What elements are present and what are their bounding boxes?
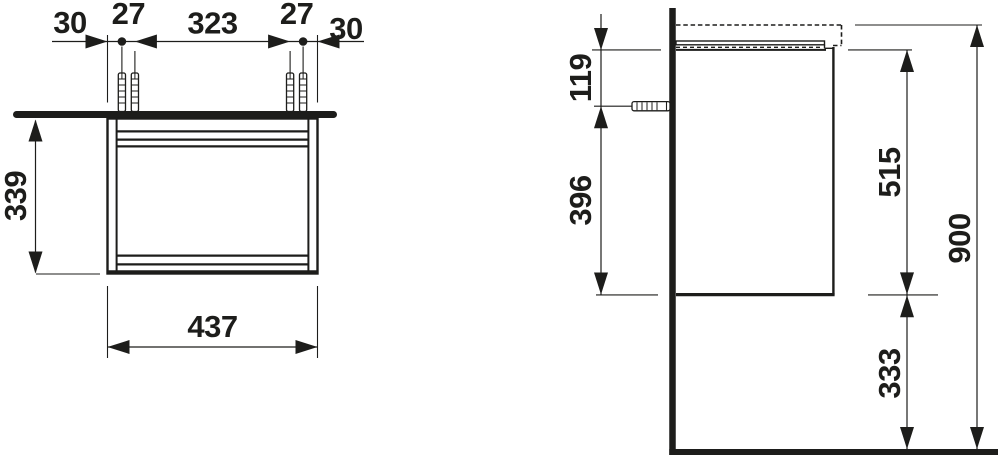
- fixing-dowel: [287, 73, 294, 112]
- dim-arrowhead-down: [970, 427, 984, 449]
- dim-dot: [118, 37, 127, 46]
- fixing-dowel-side: [594, 102, 670, 111]
- dim-label-fixing-pitch-right: 27: [280, 0, 313, 31]
- dim-label-overall-height: 900: [942, 213, 977, 263]
- dim-arrowhead-right: [296, 340, 318, 354]
- dim-label-cabinet-height: 515: [872, 147, 907, 197]
- drawing-canvas: 30 27 323 27 30 339 437: [0, 0, 1000, 458]
- cabinet-outline-front: [108, 119, 318, 274]
- dimension-fixing-heights: 119 396: [563, 14, 661, 295]
- technical-drawing: 30 27 323 27 30 339 437: [0, 0, 1000, 458]
- dim-arrowhead-left: [135, 35, 157, 49]
- dim-label-floor-clearance: 333: [872, 348, 907, 398]
- dim-arrowhead-right: [268, 35, 290, 49]
- dim-arrowhead-right: [86, 35, 108, 49]
- dim-dot: [299, 37, 308, 46]
- dim-arrowhead-down: [900, 272, 914, 294]
- dim-label-carcass-height: 339: [0, 171, 33, 221]
- dim-label-left-offset: 30: [53, 5, 86, 40]
- front-view: 30 27 323 27 30 339 437: [0, 0, 364, 358]
- dim-label-top-to-fixing: 119: [563, 53, 598, 102]
- fixing-dowel: [300, 73, 307, 112]
- side-view: 119 396 515 333 900: [563, 8, 998, 455]
- dim-arrowhead-up: [900, 295, 914, 317]
- dowel-body: [632, 102, 670, 111]
- fixing-dowels-front: [118, 73, 306, 112]
- dimension-width: 437: [108, 286, 318, 358]
- dim-label-width: 437: [187, 309, 237, 344]
- dim-arrowhead-up: [29, 120, 43, 142]
- dimension-arrowheads: [29, 25, 985, 449]
- dim-arrowhead-down: [594, 28, 608, 50]
- dim-label-fixing-span: 323: [187, 6, 237, 41]
- dim-arrowhead-down: [594, 273, 608, 295]
- dimension-carcass-height: 339: [0, 121, 100, 275]
- dimension-cabinet-height: 515 333: [848, 50, 938, 449]
- dim-arrowhead-left: [108, 340, 130, 354]
- fixing-dowel: [131, 73, 138, 112]
- dim-arrowhead-up: [970, 25, 984, 47]
- dim-label-fixing-pitch-left: 27: [112, 0, 145, 31]
- dim-label-fixing-to-bottom: 396: [563, 175, 598, 225]
- top-rail-side: [676, 41, 825, 45]
- dim-arrowhead-up: [594, 106, 608, 128]
- dim-arrowhead-down: [29, 252, 43, 274]
- dim-arrowhead-up: [900, 50, 914, 72]
- dimension-top-chain: 30 27 323 27 30: [52, 0, 364, 103]
- dim-arrowhead-down: [900, 427, 914, 449]
- fixing-dowel: [118, 73, 125, 112]
